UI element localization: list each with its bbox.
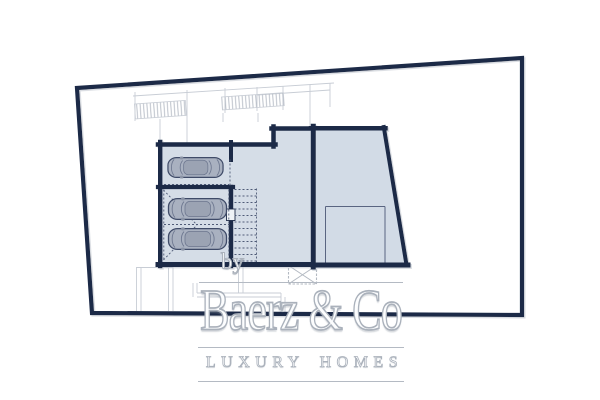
floor-plan-page: by Baerz & Co LUXURY HOMES: [0, 0, 600, 400]
garage-door-leaf: [227, 209, 236, 221]
floor-plan-drawing: [0, 0, 600, 400]
car-icon: [168, 156, 223, 178]
site-walkway-lines-bottom: [137, 267, 286, 312]
car-icon: [169, 227, 227, 250]
car-icon: [169, 197, 227, 220]
parked-cars: [168, 156, 227, 250]
exterior-stair-hatch-right: [222, 93, 285, 110]
main-room: [316, 129, 406, 263]
hall-room: [229, 129, 312, 263]
exterior-stair-hatch-left: [134, 100, 186, 119]
